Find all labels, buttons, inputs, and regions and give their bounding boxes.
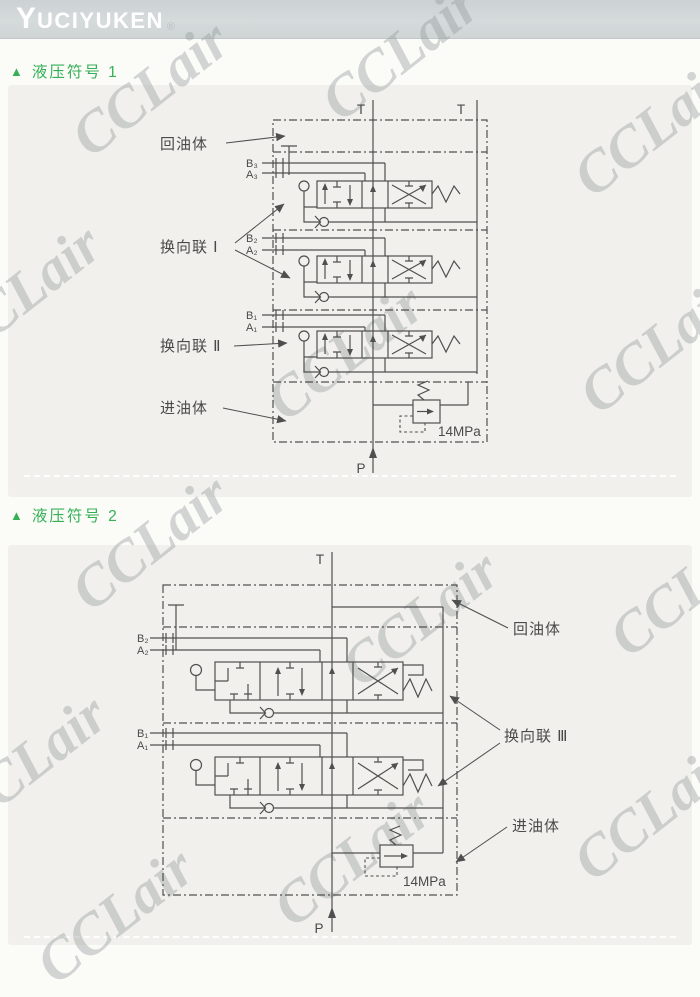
diagram-panel-2: [8, 545, 692, 945]
brand-logo: YUCIYUKEN®: [16, 2, 175, 36]
registered-mark: ®: [167, 21, 175, 33]
section-heading-1: ▲ 液压符号 1: [10, 60, 119, 82]
panel-divider-line: [24, 936, 676, 938]
brand-initial: Y: [16, 2, 37, 35]
brand-name: UCIYUKEN: [37, 8, 164, 33]
section-heading-2: ▲ 液压符号 2: [10, 504, 119, 526]
section-title: 液压符号 1: [32, 60, 119, 82]
panel-divider-line: [24, 475, 676, 477]
triangle-marker-icon: ▲: [10, 509, 23, 522]
section-title: 液压符号 2: [32, 504, 119, 526]
header-band: YUCIYUKEN®: [0, 0, 700, 39]
diagram-panel-1: [8, 85, 692, 497]
triangle-marker-icon: ▲: [10, 65, 23, 78]
